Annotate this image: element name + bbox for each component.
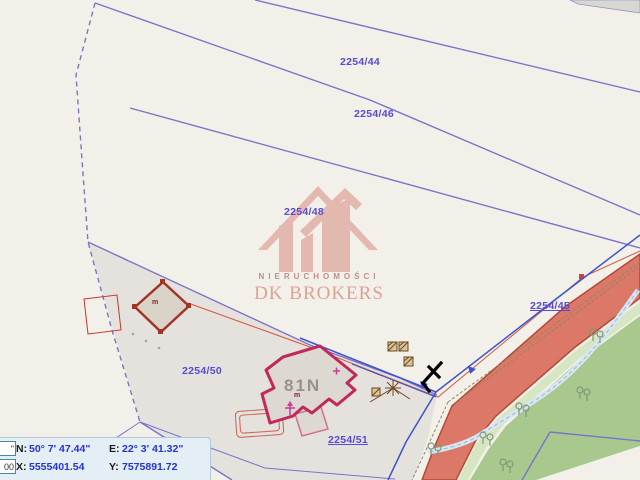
coordinate-field-partial-1[interactable]	[0, 441, 16, 456]
flow-arrow-icon	[468, 366, 476, 374]
hatched-square-icon	[372, 388, 380, 396]
culvert-icon	[423, 363, 441, 391]
map-canvas[interactable]: 2254/44 2254/46 2254/48 2254/45 2254/50 …	[0, 0, 640, 480]
x-coordinate-value: 5555401.54	[29, 461, 84, 473]
coordinate-field-partial-2[interactable]	[0, 459, 16, 474]
hatched-square-icon	[399, 342, 408, 351]
parcel-label-2254-46: 2254/46	[354, 108, 394, 120]
longitude-label: E:	[109, 443, 120, 455]
coordinate-status-panel: N: 50° 7' 47.44" E: 22° 3' 41.32" X: 555…	[0, 437, 211, 480]
y-coordinate-value: 7575891.72	[122, 461, 177, 473]
longitude-value: 22° 3' 41.32"	[122, 443, 183, 455]
parcel-label-2254-44: 2254/44	[340, 56, 380, 68]
top-road-sliver	[570, 0, 640, 13]
dk-brokers-logo-icon	[258, 186, 378, 272]
hatched-square-icon	[404, 357, 413, 366]
cadastral-map-graphics	[0, 0, 640, 480]
parcel-label-2254-51[interactable]: 2254/51	[328, 434, 368, 446]
watermark-title: DK BROKERS	[234, 283, 404, 305]
watermark-subtitle: NIERUCHOMOŚCI	[244, 272, 394, 281]
building-number-label: 81N	[284, 376, 321, 396]
building-type-symbol: m	[294, 392, 300, 399]
y-coordinate-label: Y:	[109, 461, 119, 473]
parcel-label-2254-48: 2254/48	[284, 206, 324, 218]
latitude-value: 50° 7' 47.44"	[29, 443, 90, 455]
latitude-label: N:	[16, 443, 27, 455]
parcel-label-2254-50: 2254/50	[182, 365, 222, 377]
parcel-label-2254-45[interactable]: 2254/45	[530, 300, 570, 312]
x-coordinate-label: X:	[16, 461, 27, 473]
hatched-square-icon	[388, 342, 397, 351]
building-type-symbol: m	[152, 299, 158, 306]
